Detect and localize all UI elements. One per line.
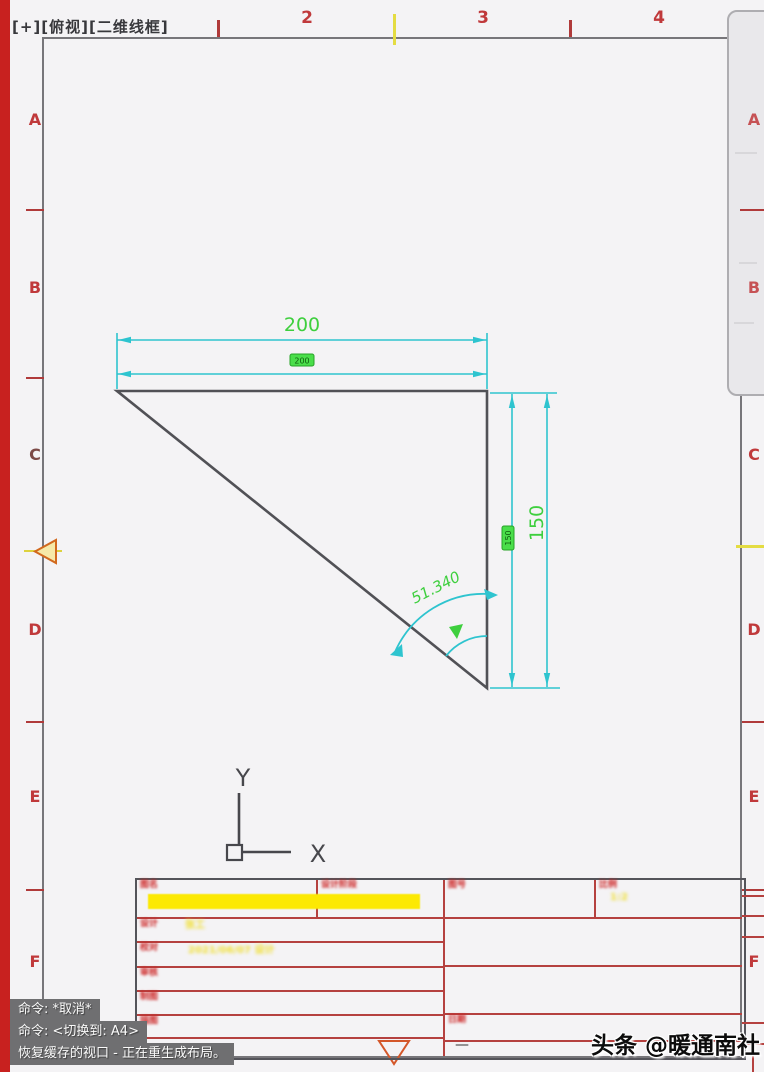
title-block-label: 比例 <box>599 881 617 890</box>
title-block-label: 制图 <box>140 993 158 1002</box>
title-block-line <box>137 941 445 943</box>
center-mark-left-triangle <box>35 540 56 563</box>
title-block-label: 图名 <box>140 881 158 890</box>
title-block-label: 图号 <box>448 881 466 890</box>
cad-paper-space-viewport: [+][俯视][二维线框] 2 3 4 A B C D E F A B C D … <box>0 0 764 1072</box>
title-block-stub <box>742 895 764 897</box>
title-block-label: 校对 <box>140 944 158 953</box>
title-block-stub <box>742 1022 764 1024</box>
title-block-line <box>594 880 596 917</box>
title-block-stub <box>742 936 764 938</box>
title-block-value: 2021/06/07 设计 <box>188 946 274 956</box>
command-history-line[interactable]: 命令: *取消* <box>10 999 100 1021</box>
ucs-icon[interactable]: Y X <box>227 764 326 868</box>
title-block-line <box>137 1037 445 1039</box>
title-block-line <box>445 965 742 967</box>
dimension-right-text[interactable]: 150 <box>526 505 548 541</box>
title-block-line <box>443 880 445 1056</box>
title-block-label: 设计阶段 <box>321 881 357 890</box>
title-block-value: 张工 <box>185 921 205 931</box>
title-block-dash: — <box>455 1037 469 1053</box>
title-block-label: 设计 <box>140 920 158 929</box>
dimension-right-small-text: 150 <box>504 530 513 545</box>
title-block-line <box>445 917 742 919</box>
title-block-label: 审核 <box>140 969 158 978</box>
ucs-y-label: Y <box>235 764 251 792</box>
dimension-top-text[interactable]: 200 <box>284 314 320 336</box>
title-highlight-bar <box>148 894 420 909</box>
dimension-angle-text[interactable]: 51.340 <box>408 568 463 608</box>
title-block-line <box>137 1014 445 1016</box>
command-status-line[interactable]: 恢复缓存的视口 - 正在重生成布局。 <box>10 1043 234 1065</box>
title-block-line <box>445 1013 742 1015</box>
title-block-stub <box>742 915 764 917</box>
title-block-value: 1:2 <box>610 893 628 903</box>
ucs-origin-square <box>227 845 242 860</box>
watermark: 头条 @暖通南社 <box>530 1026 760 1060</box>
dimension-right[interactable] <box>490 393 560 688</box>
dimension-top-small-text: 200 <box>294 357 309 366</box>
title-block-line <box>137 917 445 919</box>
triangle-entity[interactable] <box>117 391 487 688</box>
title-block-line <box>137 966 445 968</box>
title-block-label: 日期 <box>448 1016 466 1025</box>
title-block-line <box>137 990 445 992</box>
ucs-x-label: X <box>310 840 326 868</box>
command-history-line[interactable]: 命令: <切换到: A4> <box>10 1021 147 1043</box>
angle-flip-arrow[interactable] <box>449 624 463 639</box>
